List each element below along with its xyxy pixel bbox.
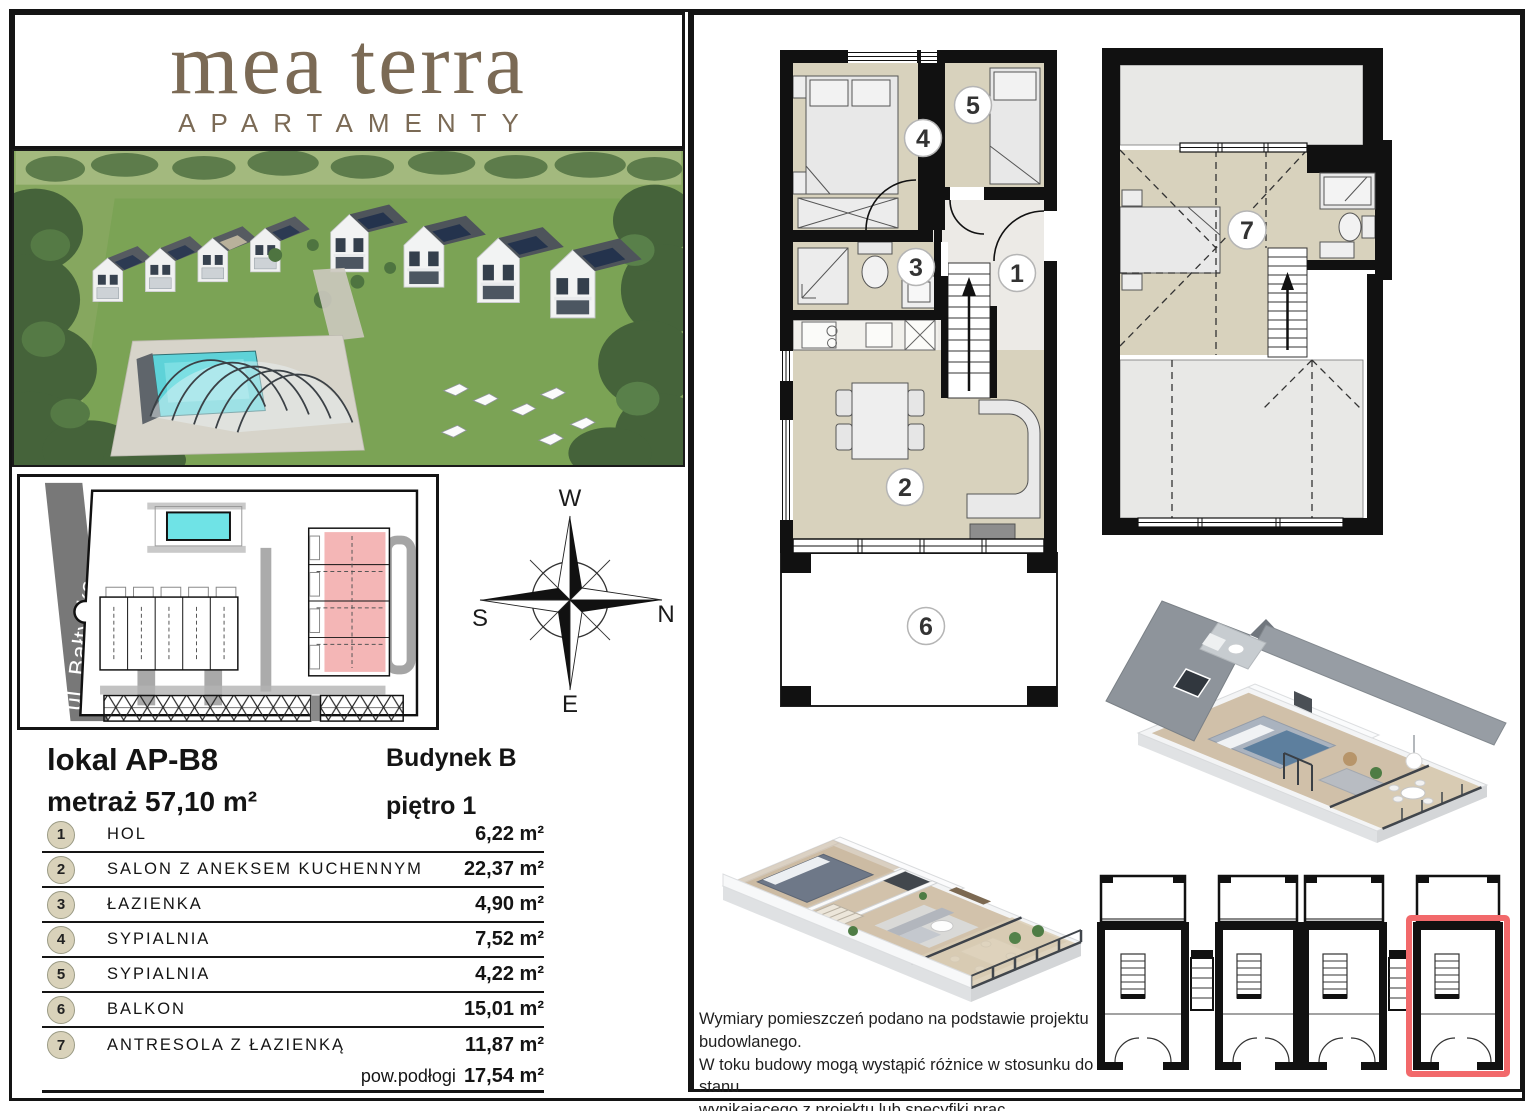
render-3d-mezzanine bbox=[1098, 583, 1508, 873]
room-name: ŁAZIENKA bbox=[107, 895, 203, 914]
compass-west-label: W bbox=[559, 485, 582, 512]
room-name: HOL bbox=[107, 825, 147, 844]
room-area: 15,01 m² bbox=[464, 998, 544, 1021]
floor-area-row: pow.podłogi 17,54 m² bbox=[42, 1062, 544, 1093]
room-name: SYPIALNIA bbox=[107, 965, 210, 984]
aerial-photo bbox=[12, 149, 685, 467]
room-name: BALKON bbox=[107, 1000, 186, 1019]
room-number-badge: 3 bbox=[47, 891, 75, 919]
compass-east-label: E bbox=[562, 691, 578, 717]
room-area: 6,22 m² bbox=[475, 823, 544, 846]
table-row: 4 SYPIALNIA 7,52 m² bbox=[42, 923, 544, 958]
building-b-block bbox=[309, 528, 390, 676]
room-number-badge: 2 bbox=[47, 856, 75, 884]
room-name: SALON Z ANEKSEM KUCHENNYM bbox=[107, 860, 423, 879]
table-row: 3 ŁAZIENKA 4,90 m² bbox=[42, 888, 544, 923]
disclaimer-text: Wymiary pomieszczeń podano na podstawie … bbox=[699, 1008, 1105, 1111]
pool bbox=[167, 512, 230, 540]
brochure-page: mea terra APARTAMENTY bbox=[0, 0, 1536, 1111]
render-3d-level1 bbox=[693, 726, 1089, 1010]
room-label-4: 4 bbox=[916, 125, 930, 153]
table-row: 1 HOL 6,22 m² bbox=[42, 818, 544, 853]
room-label-3: 3 bbox=[909, 254, 923, 282]
compass-north-label: N bbox=[657, 601, 673, 628]
brand-subtitle: APARTAMENTY bbox=[163, 108, 534, 139]
room-area: 4,22 m² bbox=[475, 963, 544, 986]
building-a-block bbox=[100, 587, 238, 670]
floor-plan-mezzanine: 7 bbox=[1098, 44, 1394, 540]
brand-logo: mea terra APARTAMENTY bbox=[12, 12, 685, 149]
site-plan: ul. Bałtycka bbox=[17, 474, 439, 730]
table-row: 7 ANTRESOLA Z ŁAZIENKĄ 11,87 m² bbox=[42, 1028, 544, 1062]
table-row: 5 SYPIALNIA 4,22 m² bbox=[42, 958, 544, 993]
room-label-6: 6 bbox=[919, 613, 933, 641]
floor-area-value: 17,54 m² bbox=[464, 1065, 544, 1088]
unit-module bbox=[1097, 876, 1503, 1070]
room-number-badge: 6 bbox=[47, 996, 75, 1024]
aerial-photo-illustration bbox=[14, 151, 683, 465]
unit-id-label: lokal AP-B8 bbox=[47, 742, 218, 778]
compass-rose: W S N E bbox=[468, 482, 673, 717]
building-b-highlight bbox=[324, 532, 385, 672]
room-number-badge: 1 bbox=[47, 821, 75, 849]
table-row: 2 SALON Z ANEKSEM KUCHENNYM 22,37 m² bbox=[42, 853, 544, 888]
pendant-lamp bbox=[1406, 753, 1422, 769]
building-label: Budynek B bbox=[386, 744, 517, 773]
room-label-1: 1 bbox=[1010, 260, 1024, 288]
room-label-5: 5 bbox=[966, 92, 980, 120]
void-below bbox=[1120, 360, 1363, 518]
site-plan-drawing: ul. Bałtycka bbox=[20, 477, 436, 727]
room-number-badge: 4 bbox=[47, 926, 75, 954]
floor-plan-level1: 4 5 3 1 2 6 bbox=[778, 46, 1062, 714]
room-number-badge: 7 bbox=[47, 1031, 75, 1059]
room-label-7: 7 bbox=[1240, 217, 1254, 245]
building-overview-plan bbox=[1095, 866, 1527, 1096]
room-number-badge: 5 bbox=[47, 961, 75, 989]
room-area: 22,37 m² bbox=[464, 858, 544, 881]
floor-area-label: pow.podłogi bbox=[361, 1066, 456, 1087]
table-row: 6 BALKON 15,01 m² bbox=[42, 993, 544, 1028]
parking-strip bbox=[104, 696, 403, 722]
room-area: 4,90 m² bbox=[475, 893, 544, 916]
room-area: 7,52 m² bbox=[475, 928, 544, 951]
compass-south-label: S bbox=[472, 605, 488, 632]
pool-enclosure bbox=[111, 335, 365, 456]
room-name: SYPIALNIA bbox=[107, 930, 210, 949]
brand-title: mea terra bbox=[170, 22, 527, 108]
unit-area-label: metraż 57,10 m² bbox=[47, 786, 257, 818]
room-name: ANTRESOLA Z ŁAZIENKĄ bbox=[107, 1036, 345, 1055]
floor-label: piętro 1 bbox=[386, 792, 476, 821]
room-table: 1 HOL 6,22 m² 2 SALON Z ANEKSEM KUCHENNY… bbox=[42, 818, 544, 1093]
room-area: 11,87 m² bbox=[465, 1034, 544, 1057]
room-label-2: 2 bbox=[898, 474, 912, 502]
